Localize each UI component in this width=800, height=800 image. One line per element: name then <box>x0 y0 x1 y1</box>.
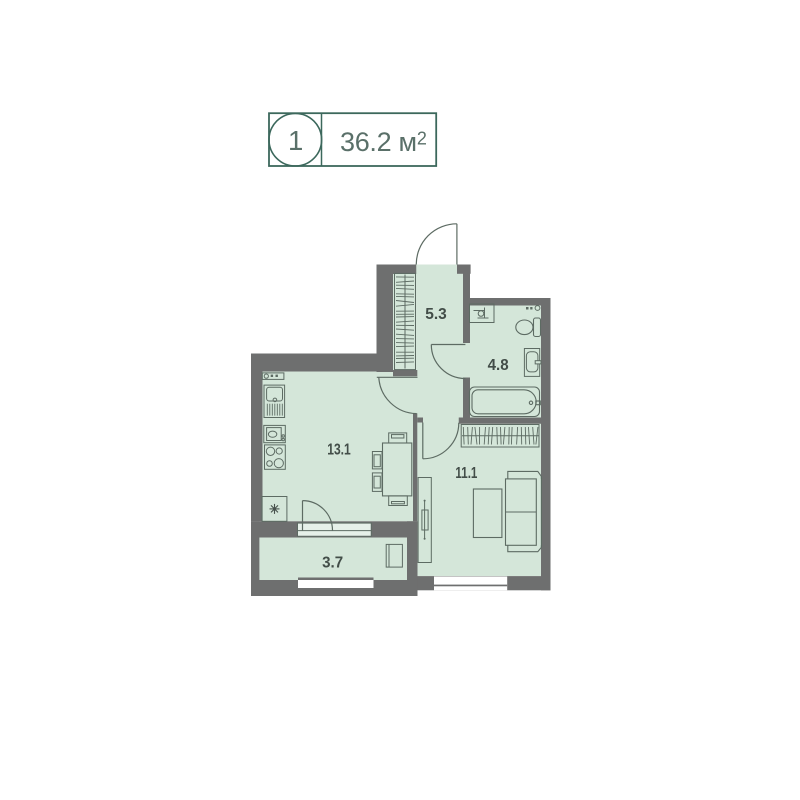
svg-text:4.8: 4.8 <box>488 357 509 374</box>
svg-text:1: 1 <box>288 125 303 156</box>
svg-text:3.7: 3.7 <box>322 554 343 571</box>
svg-text:11.1: 11.1 <box>455 465 477 482</box>
svg-text:5.3: 5.3 <box>425 306 447 323</box>
svg-text:36.2 м2: 36.2 м2 <box>340 127 427 157</box>
svg-text:13.1: 13.1 <box>327 442 351 459</box>
